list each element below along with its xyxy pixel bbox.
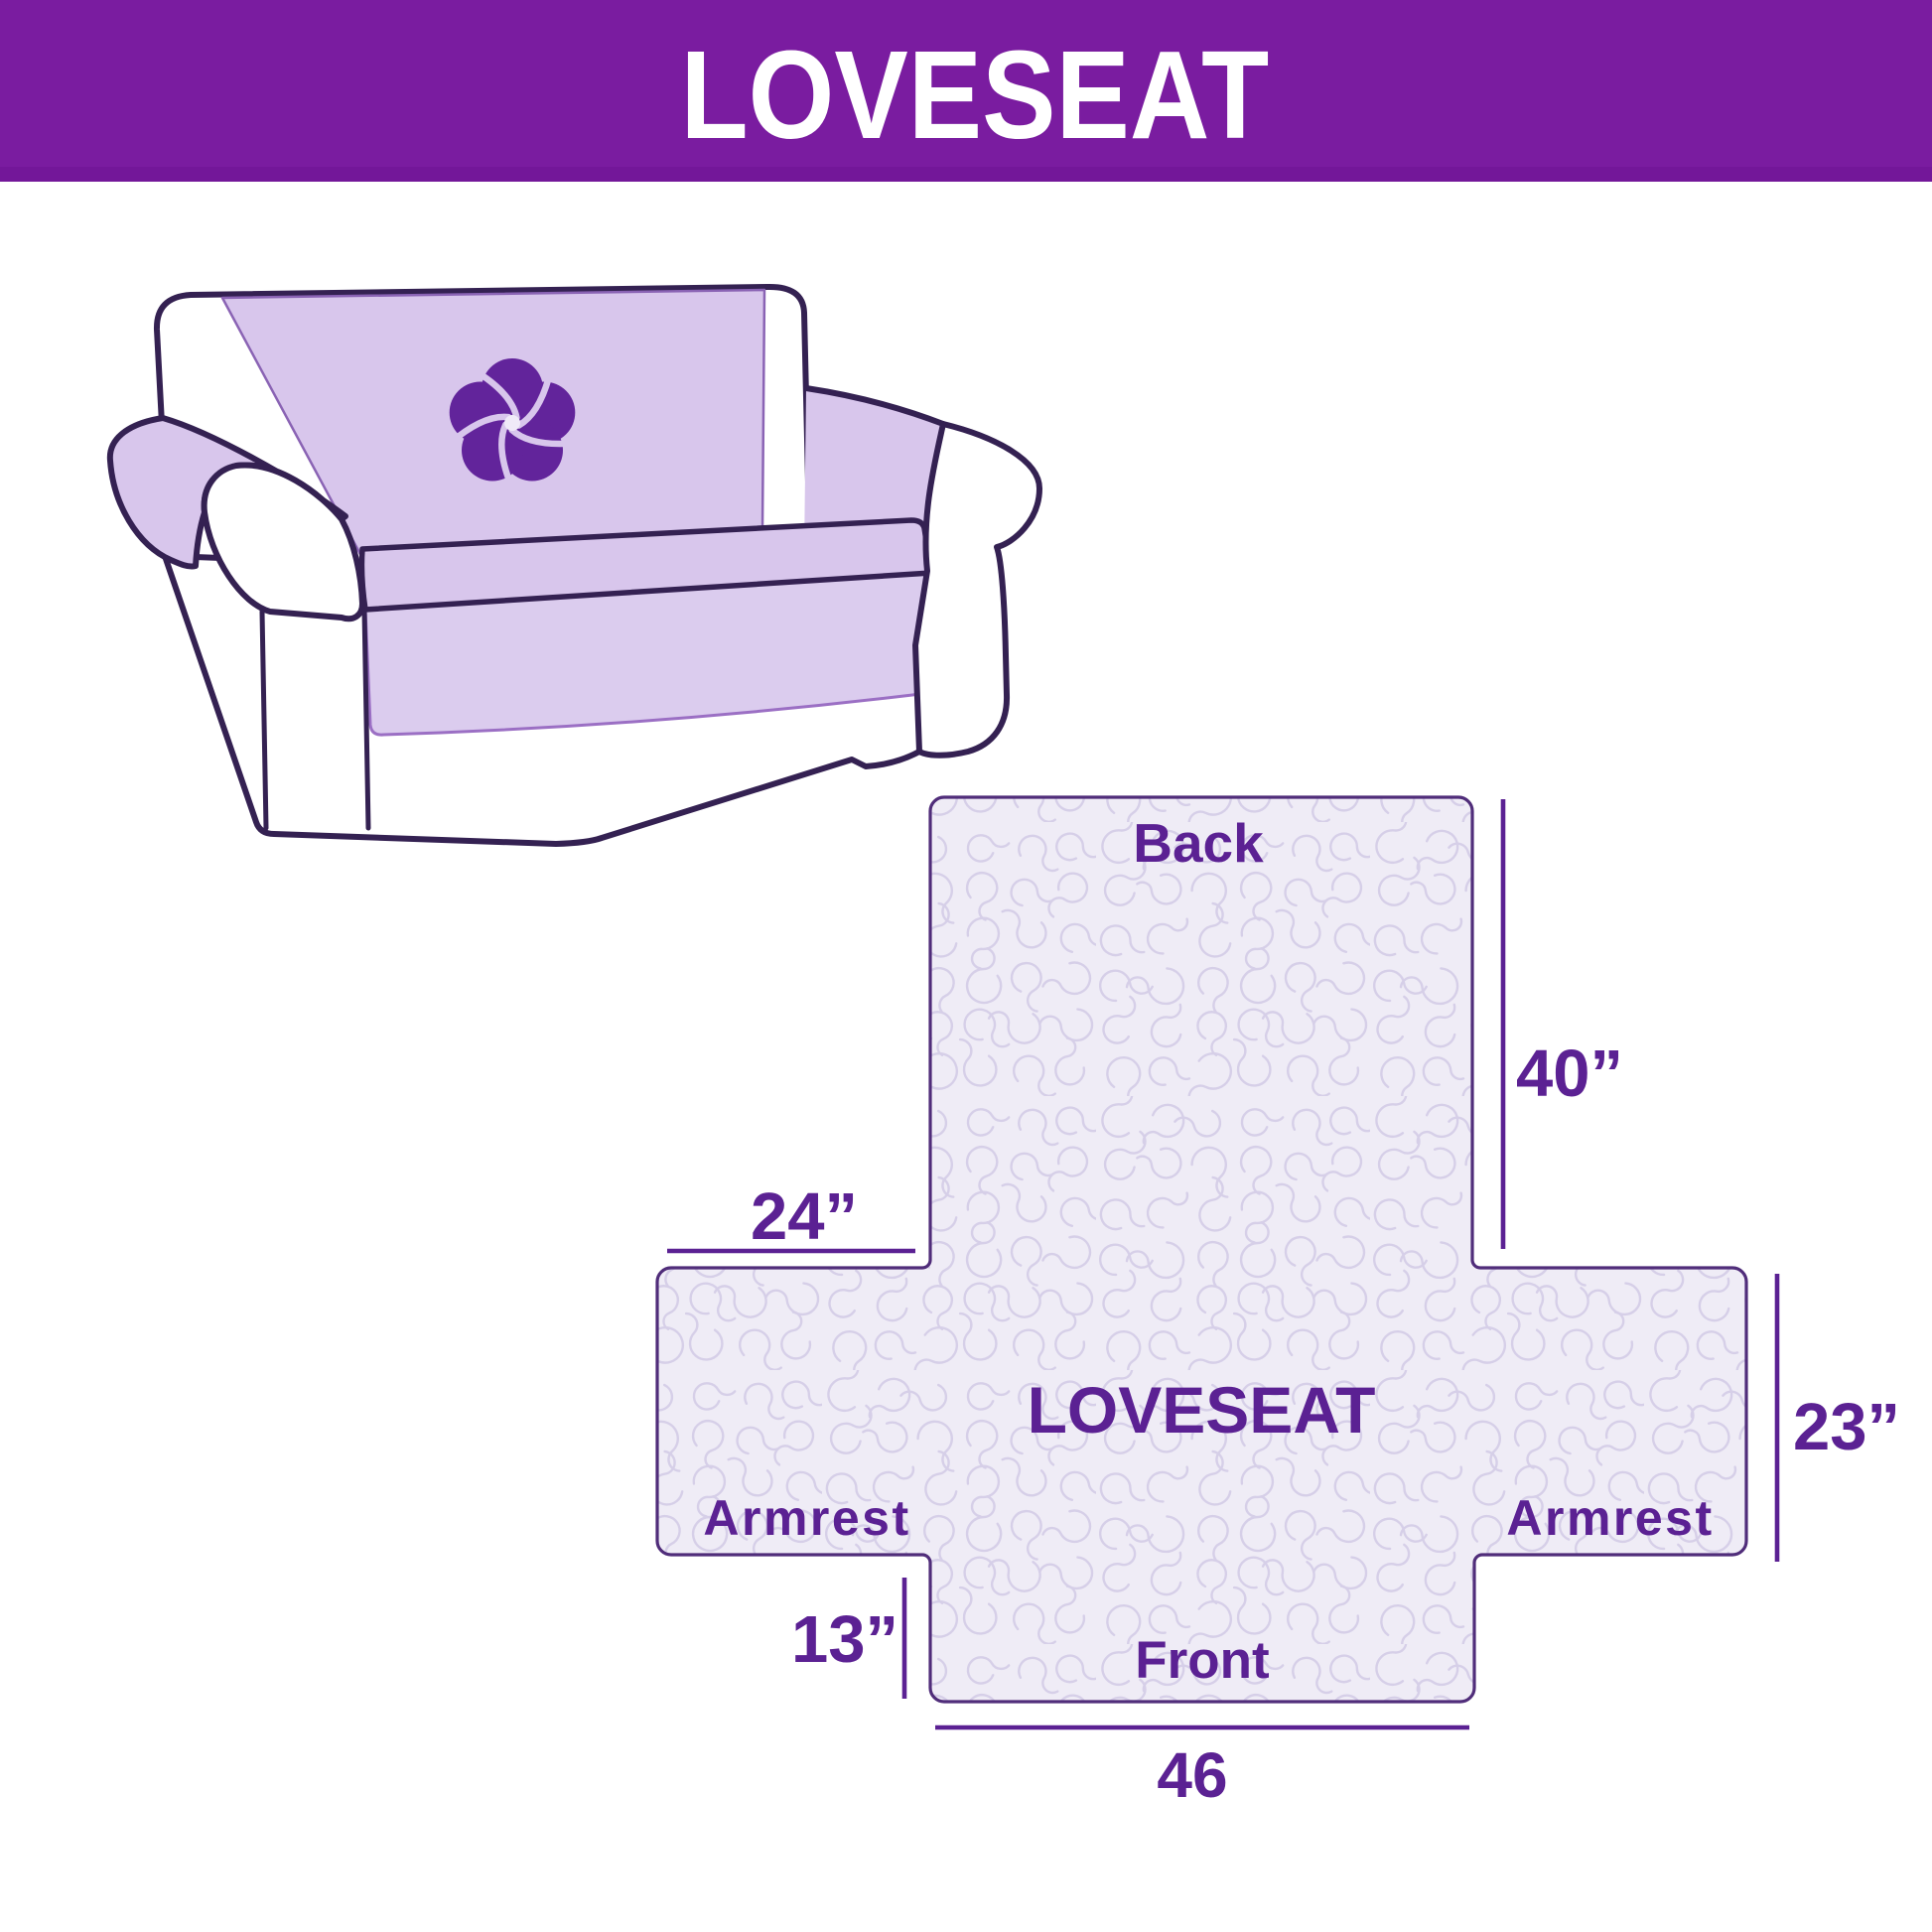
svg-text:40”: 40” <box>1516 1036 1623 1111</box>
svg-text:Armrest: Armrest <box>703 1490 910 1546</box>
svg-text:Front: Front <box>1135 1631 1269 1690</box>
svg-text:Armrest: Armrest <box>1506 1490 1714 1546</box>
svg-text:13”: 13” <box>791 1602 898 1677</box>
svg-text:46: 46 <box>1157 1739 1227 1811</box>
svg-text:24”: 24” <box>751 1179 858 1254</box>
svg-text:LOVESEAT: LOVESEAT <box>1028 1373 1376 1447</box>
svg-text:Back: Back <box>1133 812 1264 874</box>
svg-text:23”: 23” <box>1793 1390 1900 1464</box>
